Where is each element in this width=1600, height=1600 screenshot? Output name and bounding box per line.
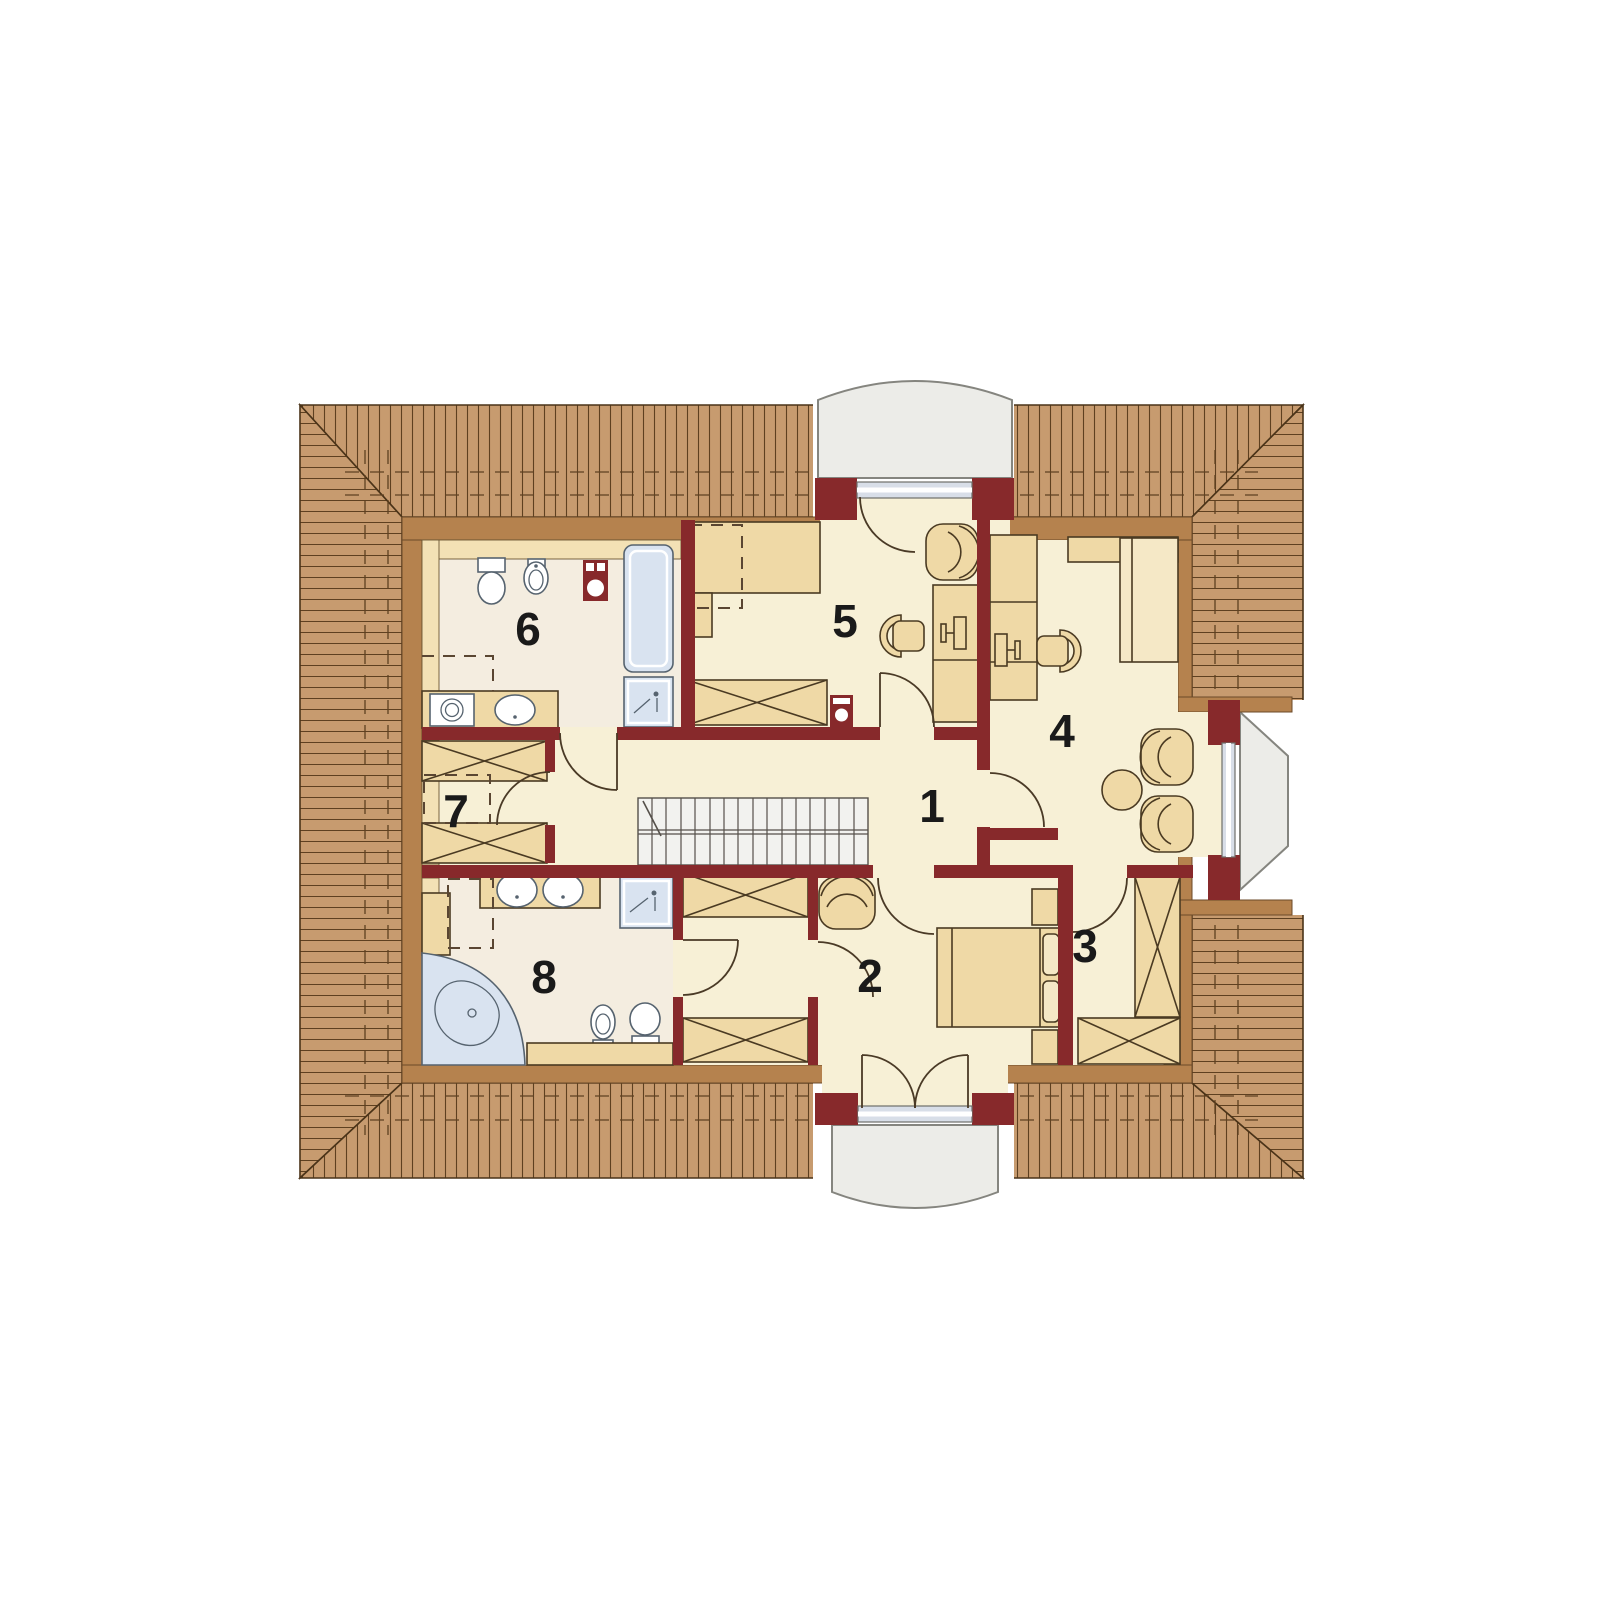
- room-label-4: 4: [1049, 705, 1075, 757]
- toilet-tank: [478, 558, 505, 572]
- toilet-icon: [478, 572, 505, 604]
- roof-band-top: [300, 405, 1303, 517]
- wall: [1058, 865, 1073, 1065]
- toilet-icon: [630, 1003, 660, 1035]
- bidet-drain: [534, 564, 538, 568]
- desk: [933, 585, 979, 722]
- wall: [422, 727, 560, 740]
- chimney-flue: [835, 709, 848, 722]
- pillow: [1043, 934, 1059, 975]
- sink-icon: [495, 695, 535, 725]
- heater-detail: [587, 580, 604, 597]
- pillow: [1043, 981, 1059, 1022]
- wall-dormer-bottom-right: [972, 1093, 1014, 1125]
- room-label-6: 6: [515, 603, 541, 655]
- wall: [673, 997, 683, 1065]
- room-label-1: 1: [919, 780, 945, 832]
- office-chair: [1037, 630, 1081, 672]
- shelf: [422, 893, 450, 955]
- roof-band-bottom: [300, 1083, 1303, 1178]
- wall: [422, 865, 873, 878]
- heater-detail: [586, 563, 594, 571]
- monitor-icon: [954, 617, 966, 649]
- sink-icon: [497, 873, 537, 907]
- counter: [527, 1043, 673, 1065]
- armchair: [926, 524, 979, 580]
- room-label-8: 8: [531, 951, 557, 1003]
- room-label-3: 3: [1072, 920, 1098, 972]
- shower-icon: [624, 677, 673, 727]
- wall-bay-bottom: [1208, 855, 1240, 900]
- wall: [545, 733, 555, 772]
- roof-band-left: [300, 405, 402, 1178]
- sink-icon: [543, 873, 583, 907]
- balcony-bottom: [832, 1125, 998, 1208]
- nightstand: [1032, 1030, 1058, 1064]
- monitor-stand: [1015, 641, 1020, 659]
- office-chair: [880, 615, 924, 657]
- round-table: [1102, 770, 1142, 810]
- sink-drain: [561, 895, 565, 899]
- shower-icon: [620, 877, 673, 928]
- wall-bay-top: [1208, 700, 1240, 745]
- wall: [808, 868, 818, 940]
- shower-head: [652, 891, 657, 896]
- heater-detail: [597, 563, 605, 571]
- room-label-2: 2: [857, 950, 883, 1002]
- wall: [617, 727, 880, 740]
- room-label-7: 7: [443, 785, 469, 837]
- wall: [977, 478, 990, 770]
- floor-plan-canvas: 1 2 3 4 5 6 7 8: [0, 0, 1600, 1600]
- chimney-vent: [833, 698, 850, 704]
- wall-dormer-bottom-left: [815, 1093, 858, 1125]
- bed: [685, 522, 820, 593]
- armchair: [819, 876, 875, 929]
- wall: [1127, 865, 1193, 878]
- monitor-stand: [941, 624, 946, 642]
- sink-drain: [515, 895, 519, 899]
- wall: [934, 865, 1073, 878]
- floor-plan-page: 1 2 3 4 5 6 7 8: [0, 0, 1600, 1600]
- wall: [808, 997, 818, 1065]
- armchair: [1140, 729, 1193, 785]
- wall: [545, 825, 555, 863]
- wall: [681, 520, 695, 737]
- nightstand: [1032, 889, 1058, 925]
- bathtub-icon: [624, 545, 673, 672]
- room-label-5: 5: [832, 595, 858, 647]
- wall: [988, 828, 1058, 840]
- wall-dormer-top-left: [815, 478, 857, 520]
- balcony-top: [818, 381, 1012, 478]
- shower-head: [654, 692, 659, 697]
- armchair: [1140, 796, 1193, 852]
- cabinet: [1120, 538, 1178, 662]
- desk: [990, 535, 1037, 700]
- monitor-icon: [995, 634, 1007, 666]
- sink-drain: [513, 715, 517, 719]
- wall: [673, 868, 683, 940]
